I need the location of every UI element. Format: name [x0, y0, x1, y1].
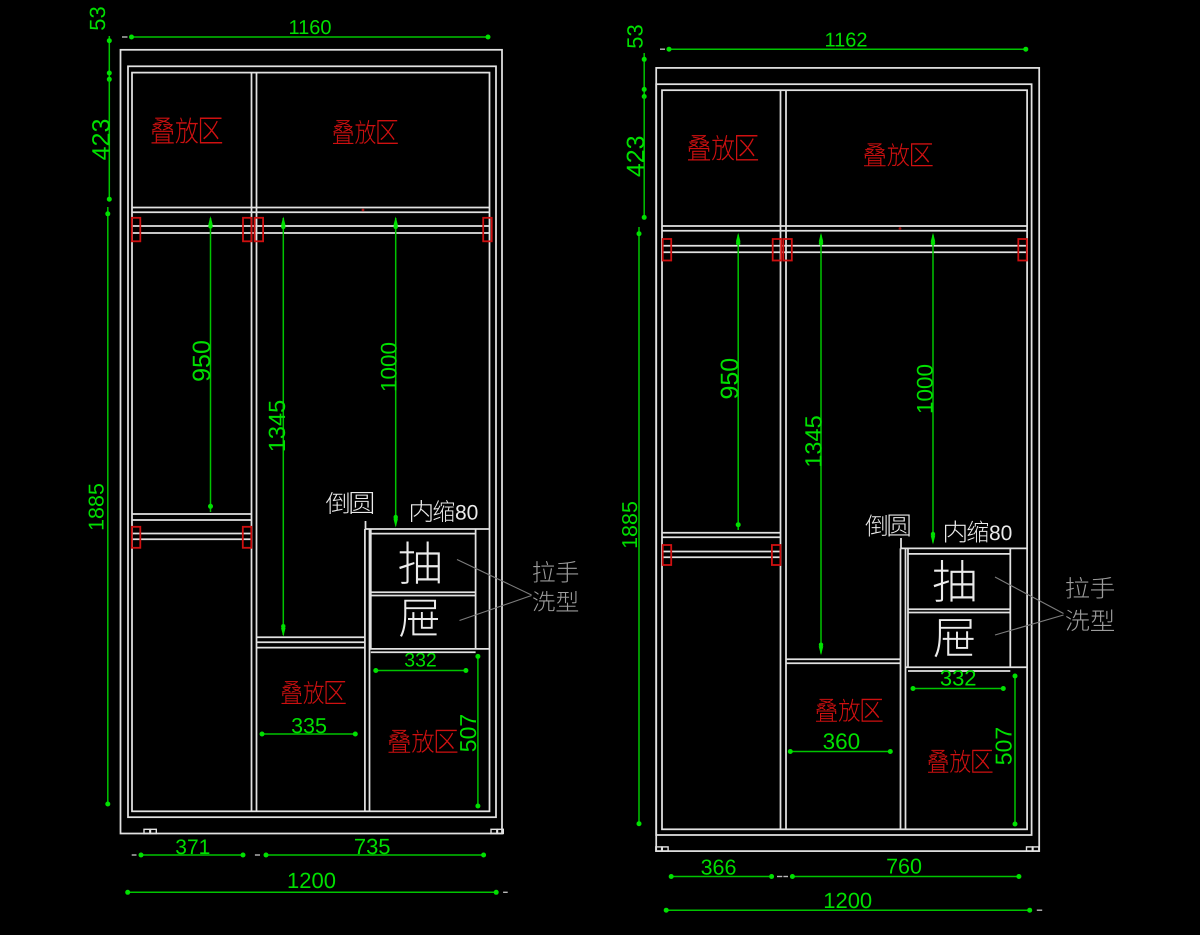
- svg-text:1160: 1160: [288, 17, 331, 39]
- svg-text:53: 53: [623, 24, 648, 48]
- svg-text:371: 371: [175, 836, 210, 859]
- svg-text:53: 53: [85, 6, 110, 30]
- svg-text:950: 950: [716, 358, 744, 400]
- svg-text:1345: 1345: [264, 400, 290, 452]
- svg-text:80: 80: [989, 522, 1012, 545]
- svg-text:1345: 1345: [801, 415, 827, 467]
- svg-text:1200: 1200: [287, 868, 336, 893]
- svg-text:1885: 1885: [84, 483, 108, 531]
- svg-text:332: 332: [940, 666, 977, 691]
- svg-text:423: 423: [88, 119, 116, 161]
- svg-text:360: 360: [823, 729, 861, 754]
- svg-text:1200: 1200: [823, 888, 872, 913]
- svg-text:332: 332: [404, 649, 437, 671]
- svg-text:1000: 1000: [376, 342, 401, 392]
- svg-text:1162: 1162: [824, 30, 867, 52]
- svg-text:1885: 1885: [618, 501, 642, 549]
- svg-text:507: 507: [990, 727, 1016, 765]
- svg-text:507: 507: [455, 714, 481, 752]
- svg-text:335: 335: [291, 714, 327, 738]
- svg-text:80: 80: [455, 502, 478, 525]
- svg-text:950: 950: [188, 340, 216, 382]
- svg-text:366: 366: [701, 856, 737, 880]
- svg-text:735: 735: [354, 834, 391, 859]
- svg-text:1000: 1000: [913, 364, 938, 414]
- svg-text:760: 760: [886, 855, 922, 879]
- svg-text:423: 423: [622, 135, 650, 177]
